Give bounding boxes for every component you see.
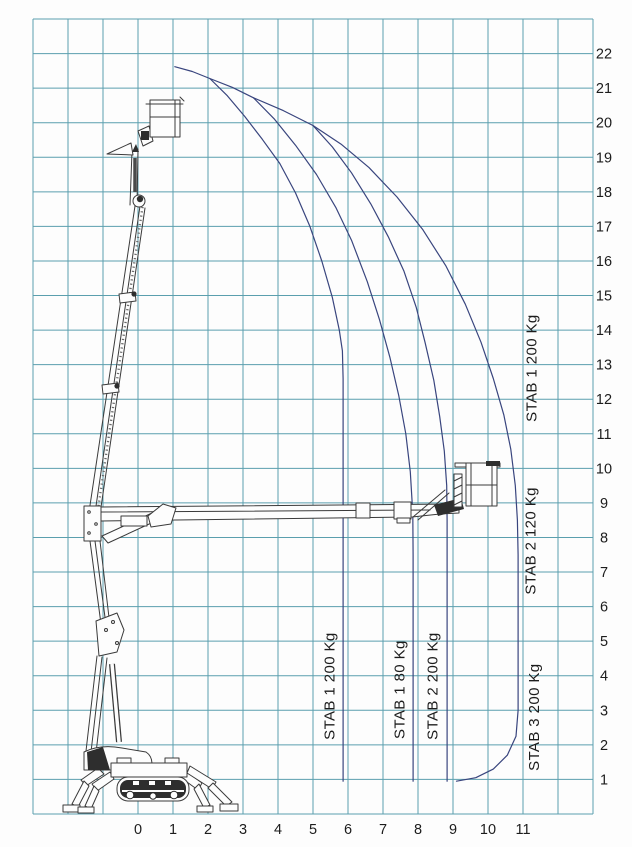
x-tick-label: 5 — [309, 822, 317, 838]
y-tick-label: 9 — [600, 496, 608, 512]
horizontal-boom — [101, 502, 459, 543]
y-tick-label: 20 — [596, 116, 612, 132]
y-tick-label: 12 — [596, 392, 612, 408]
y-tick-label: 2 — [600, 738, 608, 754]
main-boom — [89, 206, 145, 514]
y-tick-label: 3 — [600, 703, 608, 719]
tracked-chassis — [111, 758, 189, 801]
y-tick-label: 21 — [596, 81, 612, 97]
x-tick-label: 8 — [414, 822, 422, 838]
x-tick-label: 11 — [515, 822, 530, 838]
pivot-plate — [84, 506, 101, 541]
chart-svg: 01234567891011 1234567891011121314151617… — [0, 0, 632, 847]
y-tick-label: 4 — [600, 669, 608, 685]
y-tick-label: 5 — [600, 634, 608, 650]
upper-basket — [107, 97, 184, 207]
stab-load-label: STAB 2 120 Kg — [522, 487, 539, 594]
x-tick-label: 2 — [204, 822, 212, 838]
x-tick-label: 6 — [344, 822, 352, 838]
x-tick-label: 1 — [169, 822, 177, 838]
x-tick-label: 10 — [480, 822, 496, 838]
load-chart-diagram: 01234567891011 1234567891011121314151617… — [0, 0, 632, 847]
y-tick-label: 19 — [596, 150, 612, 166]
stab-load-label: STAB 2 200 Kg — [424, 632, 441, 739]
stab-load-label: STAB 1 200 Kg — [322, 632, 339, 739]
stab-load-label: STAB 3 200 Kg — [526, 663, 543, 770]
y-tick-label: 6 — [600, 600, 608, 616]
stab-load-label: STAB 1 80 Kg — [392, 640, 409, 739]
y-tick-label: 11 — [596, 427, 611, 443]
x-tick-label: 3 — [239, 822, 247, 838]
y-axis-labels: 12345678910111213141516171819202122 — [596, 47, 612, 789]
x-tick-label: 7 — [379, 822, 387, 838]
y-tick-label: 17 — [596, 219, 612, 235]
y-tick-label: 8 — [600, 530, 608, 546]
y-tick-label: 7 — [600, 565, 608, 581]
y-tick-label: 14 — [596, 323, 612, 339]
y-tick-label: 1 — [600, 772, 608, 788]
y-tick-label: 18 — [596, 185, 612, 201]
y-tick-label: 22 — [596, 47, 612, 63]
y-tick-label: 10 — [596, 461, 612, 477]
x-tick-label: 9 — [449, 822, 457, 838]
envelope-envelope-top — [175, 67, 313, 126]
x-tick-label: 0 — [134, 822, 142, 838]
stab-load-label: STAB 1 200 Kg — [523, 314, 540, 421]
x-axis-labels: 01234567891011 — [134, 822, 531, 838]
y-tick-label: 15 — [596, 289, 612, 305]
y-tick-label: 13 — [596, 358, 612, 374]
y-tick-label: 16 — [596, 254, 612, 270]
lower-arm — [84, 541, 152, 770]
stab-annotations: STAB 1 200 KgSTAB 1 80 KgSTAB 2 200 KgST… — [322, 314, 543, 771]
envelope-curves-layer — [175, 67, 518, 782]
x-tick-label: 4 — [274, 822, 282, 838]
